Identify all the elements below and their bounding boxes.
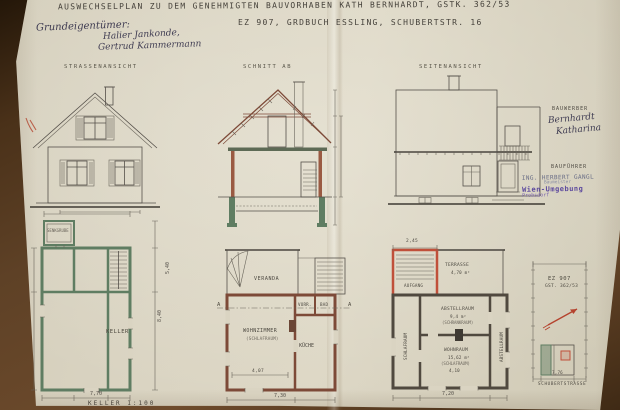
dim-eg-bottom: 7,30: [274, 394, 286, 399]
section-mark-a-left: A: [217, 303, 221, 309]
dim-keller-right-upper: 5,40: [166, 262, 171, 274]
view-label-front: STRASSENANSICHT: [64, 65, 138, 71]
room-label-wohnzimmer: WOHNZIMMER: [243, 329, 277, 334]
dim-og-bottom: 7,20: [442, 392, 454, 397]
dim-site-bottom: 7,76: [552, 371, 563, 375]
dim-keller-bottom: 7,70: [90, 392, 102, 397]
dim-keller-right: 8,40: [158, 310, 163, 322]
room-label-abstell-vert: ABSTELLRAUM: [500, 332, 504, 362]
parcel-label: EZ 907: [548, 277, 571, 283]
sub-abstellraum: (SCHRANKRAUM): [442, 321, 473, 325]
room-label-keller: KELLER: [106, 330, 129, 336]
outbuilding-label: SENKGRUBE: [47, 229, 69, 233]
room-label-bad: BAD: [320, 303, 328, 307]
bauführer-stamp: ING. HERBERT GANGL Baumeister Wien-Umgeb…: [522, 174, 618, 199]
front-elevation-drawing: [30, 87, 160, 214]
red-pencil-mark: [26, 118, 36, 132]
room-label-vorraum: VORR.: [298, 303, 312, 307]
area-terrasse: 4,70 m²: [451, 271, 470, 275]
section-mark-a-right: A: [348, 303, 352, 309]
street-label: SCHUBERTSTRASSE: [538, 382, 586, 386]
title-line2: EZ 907, GRDBUCH ESSLING, SCHUBERTSTR. 16: [238, 19, 483, 27]
area-abstellraum: 9,4 m²: [450, 315, 466, 319]
room-label-terrasse: TERRASSE: [445, 264, 469, 269]
view-label-side: SEITENANSICHT: [419, 65, 483, 71]
room-label-schlafraum-vert: SCHLAFRAUM: [404, 333, 408, 360]
sub-wohnraum: (SCHLAFRAUM): [441, 362, 470, 366]
dim-og-top: 2,45: [406, 240, 418, 245]
basement-plan-drawing: [31, 211, 158, 401]
room-label-veranda: VERANDA: [254, 277, 279, 282]
room-label-kueche: KÜCHE: [299, 344, 314, 349]
baufuehrer-label: BAUFÜHRER: [551, 165, 587, 170]
area-wohnraum: 15,62 m²: [448, 356, 470, 360]
groundfloor-plan-drawing: [217, 250, 350, 403]
room-sub-wohnzimmer: (SCHLAFRAUM): [246, 337, 279, 341]
view-label-section: SCHNITT AB: [243, 65, 292, 71]
bauwerber-label: BAUWERBER: [552, 107, 588, 112]
gst-label: GST. 362/53: [545, 285, 578, 290]
scanned-plan-photo: AUSWECHSELPLAN ZU DEM GENEHMIGTEN BAUVOR…: [0, 0, 620, 410]
section-ab-drawing: [218, 82, 343, 227]
room-label-wohnraum: WOHNRAUM: [444, 349, 468, 354]
dim-eg-inner: 4,07: [252, 370, 264, 375]
keller-caption: KELLER 1:100: [88, 401, 155, 407]
dim-og-inner: 4,10: [449, 369, 460, 373]
stair-label: AUFGANG: [404, 284, 423, 288]
room-label-abstellraum: ABSTELLRAUM: [441, 308, 474, 313]
